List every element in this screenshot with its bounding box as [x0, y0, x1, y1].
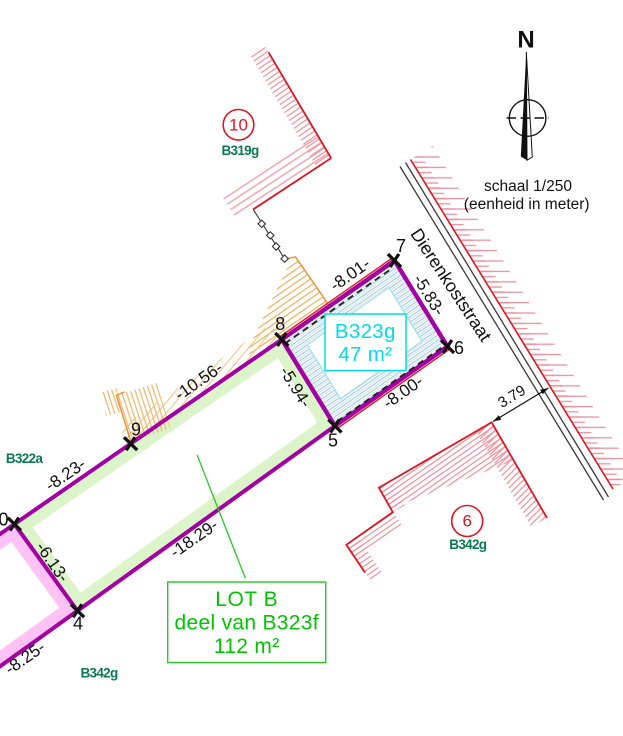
svg-text:B342g: B342g	[449, 537, 486, 552]
svg-text:B342g: B342g	[80, 666, 117, 681]
svg-text:B319g: B319g	[221, 143, 258, 158]
svg-text:6: 6	[454, 338, 464, 358]
svg-text:B322a: B322a	[6, 451, 43, 466]
svg-text:47 m²: 47 m²	[338, 343, 392, 366]
svg-text:9: 9	[131, 419, 141, 439]
svg-text:LOT B: LOT B	[215, 588, 278, 611]
svg-text:(eenheid in meter): (eenheid in meter)	[464, 196, 590, 213]
svg-text:schaal 1/250: schaal 1/250	[484, 178, 572, 195]
svg-text:10: 10	[229, 116, 248, 135]
svg-text:5: 5	[328, 431, 338, 451]
svg-text:N: N	[517, 27, 534, 54]
svg-text:112 m²: 112 m²	[214, 635, 280, 658]
svg-text:7: 7	[396, 236, 406, 256]
svg-text:4: 4	[73, 614, 83, 634]
svg-text:8: 8	[275, 314, 285, 334]
svg-text:6: 6	[462, 512, 471, 531]
svg-text:0: 0	[0, 509, 9, 529]
svg-text:B323g: B323g	[335, 320, 396, 343]
svg-text:deel van B323f: deel van B323f	[175, 612, 319, 635]
